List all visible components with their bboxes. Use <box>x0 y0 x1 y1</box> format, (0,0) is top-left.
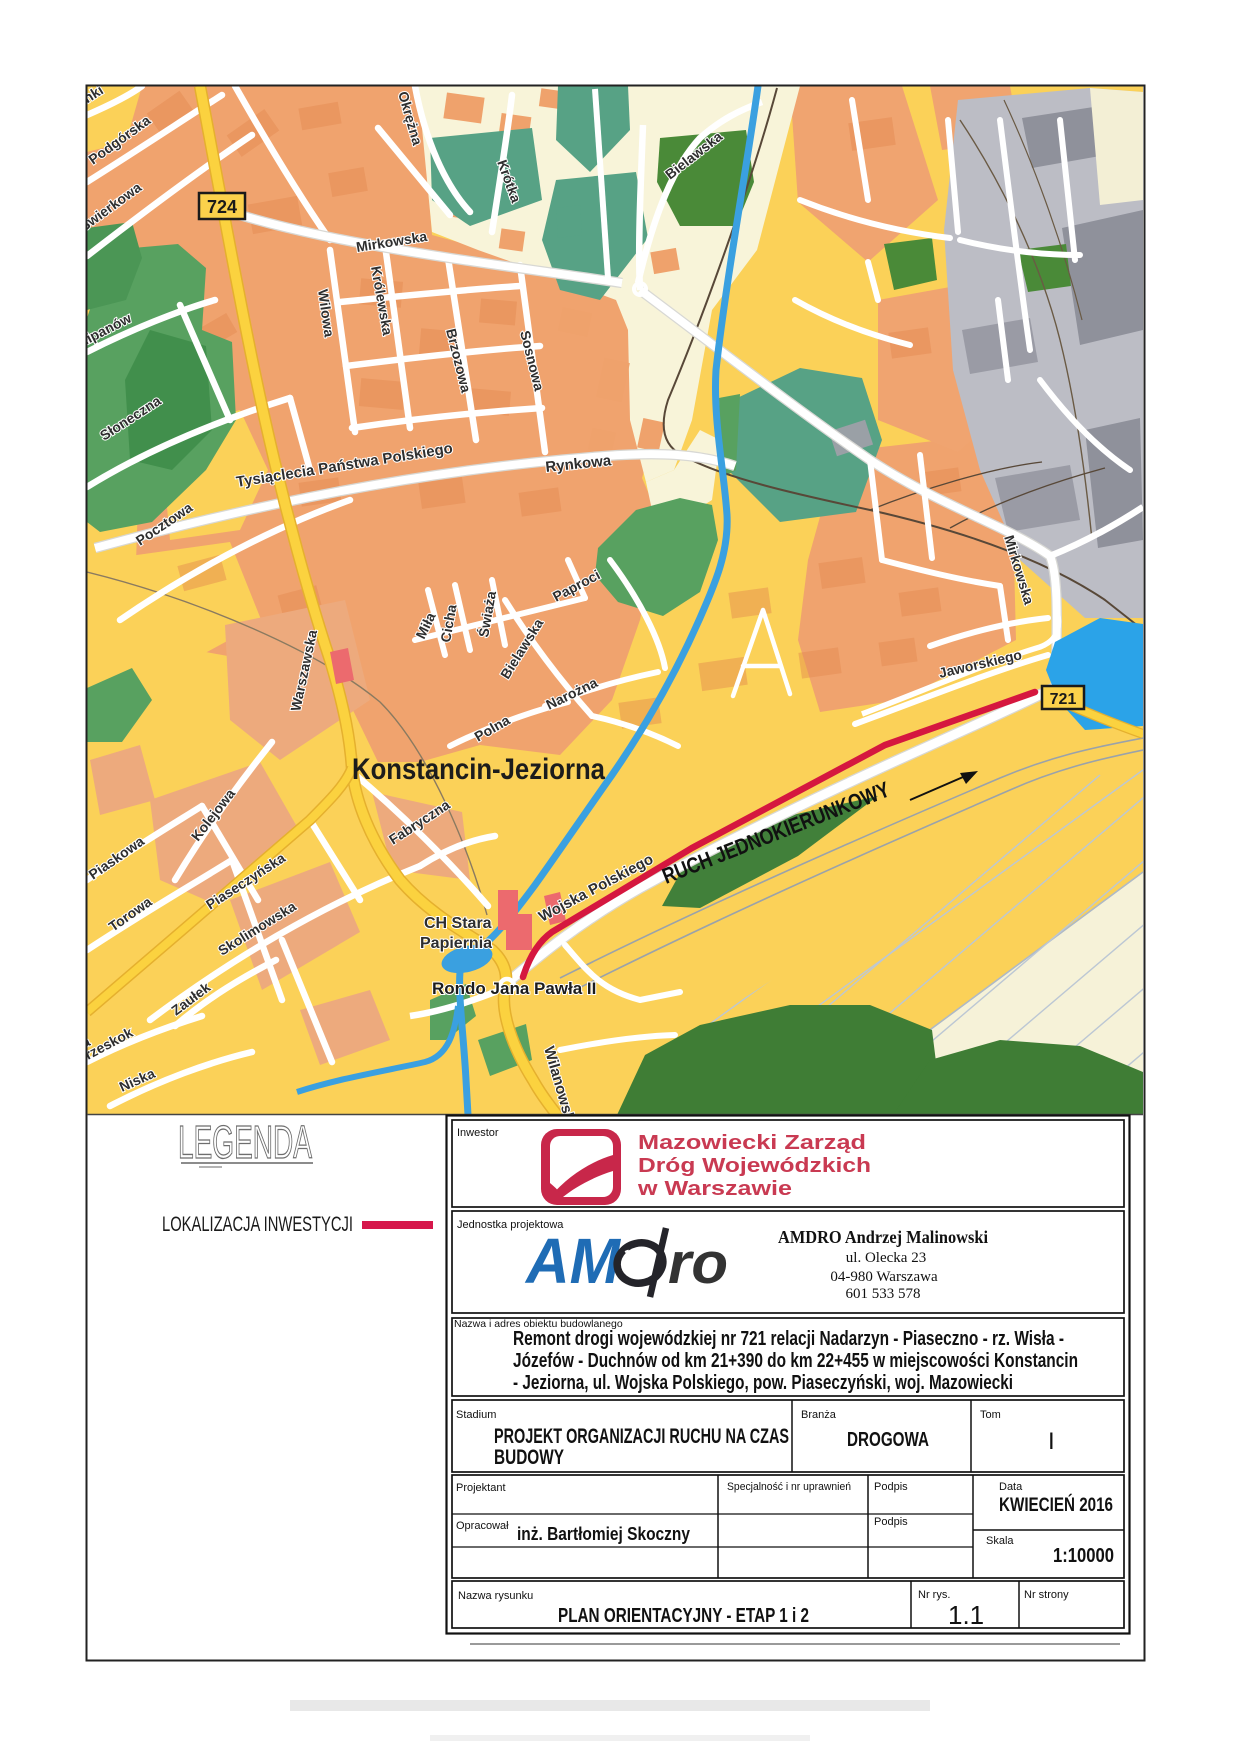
svg-text:Nr strony: Nr strony <box>1024 1589 1069 1601</box>
svg-text:w Warszawie: w Warszawie <box>637 1178 792 1200</box>
svg-text:KWIECIEŃ 2016: KWIECIEŃ 2016 <box>999 1494 1113 1516</box>
svg-text:724: 724 <box>207 197 237 217</box>
svg-text:Nazwa rysunku: Nazwa rysunku <box>458 1590 533 1602</box>
svg-text:Opracował: Opracował <box>456 1520 509 1532</box>
svg-text:Data: Data <box>999 1481 1023 1493</box>
svg-text:1.1: 1.1 <box>948 1600 984 1630</box>
svg-text:Inwestor: Inwestor <box>457 1127 499 1139</box>
svg-text:721: 721 <box>1050 691 1077 708</box>
svg-text:Tom: Tom <box>980 1409 1001 1421</box>
svg-text:PLAN ORIENTACYJNY - ETAP 1 i 2: PLAN ORIENTACYJNY - ETAP 1 i 2 <box>558 1605 809 1627</box>
svg-text:Specjalność i nr uprawnień: Specjalność i nr uprawnień <box>727 1481 851 1493</box>
svg-text:ro: ro <box>668 1231 728 1296</box>
svg-text:Józefów - Duchnów od km 21+390: Józefów - Duchnów od km 21+390 do km 22+… <box>513 1350 1078 1372</box>
svg-text:04-980 Warszawa: 04-980 Warszawa <box>830 1269 938 1285</box>
svg-text:CH Stara: CH Stara <box>424 915 492 932</box>
svg-text:Podpis: Podpis <box>874 1516 908 1528</box>
svg-text:DROGOWA: DROGOWA <box>847 1429 929 1451</box>
svg-text:Remont drogi wojewódzkiej nr 7: Remont drogi wojewódzkiej nr 721 relacji… <box>513 1328 1064 1350</box>
svg-text:Papiernia: Papiernia <box>420 935 492 952</box>
svg-text:LOKALIZACJA INWESTYCJI: LOKALIZACJA INWESTYCJI <box>162 1213 353 1236</box>
svg-text:Mazowiecki Zarząd: Mazowiecki Zarząd <box>638 1132 866 1154</box>
svg-text:- Jeziorna, ul. Wojska Polskie: - Jeziorna, ul. Wojska Polskiego, pow. P… <box>513 1372 1013 1394</box>
svg-text:I: I <box>1048 1428 1055 1455</box>
svg-text:PROJEKT ORGANIZACJI RUCHU NA C: PROJEKT ORGANIZACJI RUCHU NA CZAS <box>494 1425 789 1448</box>
svg-text:Projektant: Projektant <box>456 1482 506 1494</box>
svg-text:AMDRO Andrzej Malinowski: AMDRO Andrzej Malinowski <box>778 1227 988 1247</box>
svg-text:Rondo Jana Pawła II: Rondo Jana Pawła II <box>432 979 596 998</box>
svg-text:601 533 578: 601 533 578 <box>846 1286 921 1302</box>
svg-text:ul. Olecka 23: ul. Olecka 23 <box>846 1250 926 1266</box>
svg-text:Branża: Branża <box>801 1409 837 1421</box>
svg-text:Stadium: Stadium <box>456 1409 496 1421</box>
svg-text:Nr rys.: Nr rys. <box>918 1589 950 1601</box>
svg-text:inż. Bartłomiej Skoczny: inż. Bartłomiej Skoczny <box>517 1524 690 1544</box>
svg-text:Podpis: Podpis <box>874 1481 908 1493</box>
svg-text:AM: AM <box>524 1225 621 1297</box>
svg-text:1:10000: 1:10000 <box>1053 1545 1114 1567</box>
svg-text:Konstancin-Jeziorna: Konstancin-Jeziorna <box>352 753 605 786</box>
svg-text:LEGENDA: LEGENDA <box>178 1116 312 1168</box>
svg-text:Dróg Wojewódzkich: Dróg Wojewódzkich <box>638 1155 871 1177</box>
svg-text:Skala: Skala <box>986 1535 1014 1547</box>
svg-text:BUDOWY: BUDOWY <box>494 1446 564 1469</box>
